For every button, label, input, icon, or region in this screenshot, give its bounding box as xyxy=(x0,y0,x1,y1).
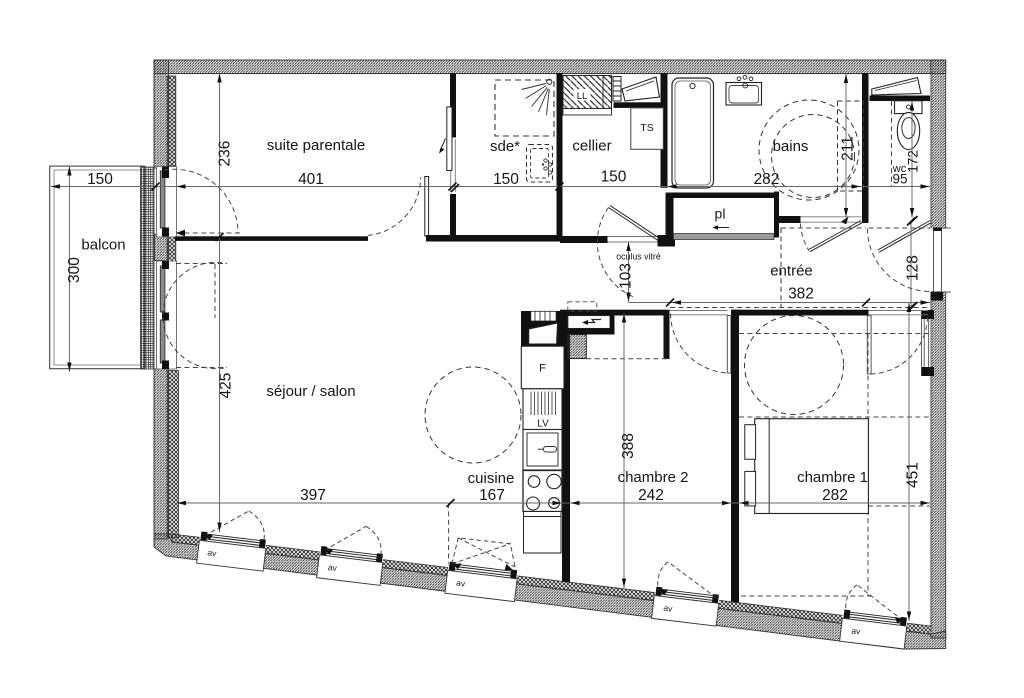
svg-text:388: 388 xyxy=(620,433,637,459)
svg-text:bains: bains xyxy=(773,138,809,155)
svg-text:entrée: entrée xyxy=(770,263,813,280)
svg-text:150: 150 xyxy=(87,171,113,188)
svg-text:382: 382 xyxy=(788,286,814,303)
svg-text:242: 242 xyxy=(638,487,664,504)
svg-text:cellier: cellier xyxy=(572,138,611,155)
svg-text:chambre 1: chambre 1 xyxy=(797,469,868,486)
svg-text:451: 451 xyxy=(905,462,922,488)
svg-text:cuisine: cuisine xyxy=(468,470,515,487)
svg-text:401: 401 xyxy=(298,171,324,188)
svg-text:397: 397 xyxy=(300,487,326,504)
svg-text:167: 167 xyxy=(479,487,505,504)
svg-text:172: 172 xyxy=(906,150,921,173)
svg-text:chambre 2: chambre 2 xyxy=(618,469,689,486)
svg-text:séjour / salon: séjour / salon xyxy=(266,383,355,400)
svg-text:sde*: sde* xyxy=(490,138,520,155)
svg-text:LL: LL xyxy=(577,91,588,102)
svg-text:oculus vitré: oculus vitré xyxy=(616,252,661,262)
svg-text:236: 236 xyxy=(217,141,234,167)
svg-text:128: 128 xyxy=(905,255,922,281)
svg-text:suite parentale: suite parentale xyxy=(267,137,365,154)
svg-text:150: 150 xyxy=(601,169,627,186)
svg-text:TS: TS xyxy=(640,122,653,134)
svg-text:282: 282 xyxy=(822,487,848,504)
svg-text:F: F xyxy=(539,363,546,375)
svg-text:150: 150 xyxy=(493,171,519,188)
svg-text:300: 300 xyxy=(66,257,83,283)
svg-text:211: 211 xyxy=(840,136,857,161)
svg-text:103: 103 xyxy=(618,263,635,289)
svg-text:425: 425 xyxy=(218,373,235,399)
svg-text:282: 282 xyxy=(754,171,780,188)
svg-text:LV: LV xyxy=(537,419,549,430)
svg-text:pl: pl xyxy=(715,206,726,222)
svg-text:balcon: balcon xyxy=(81,237,125,254)
